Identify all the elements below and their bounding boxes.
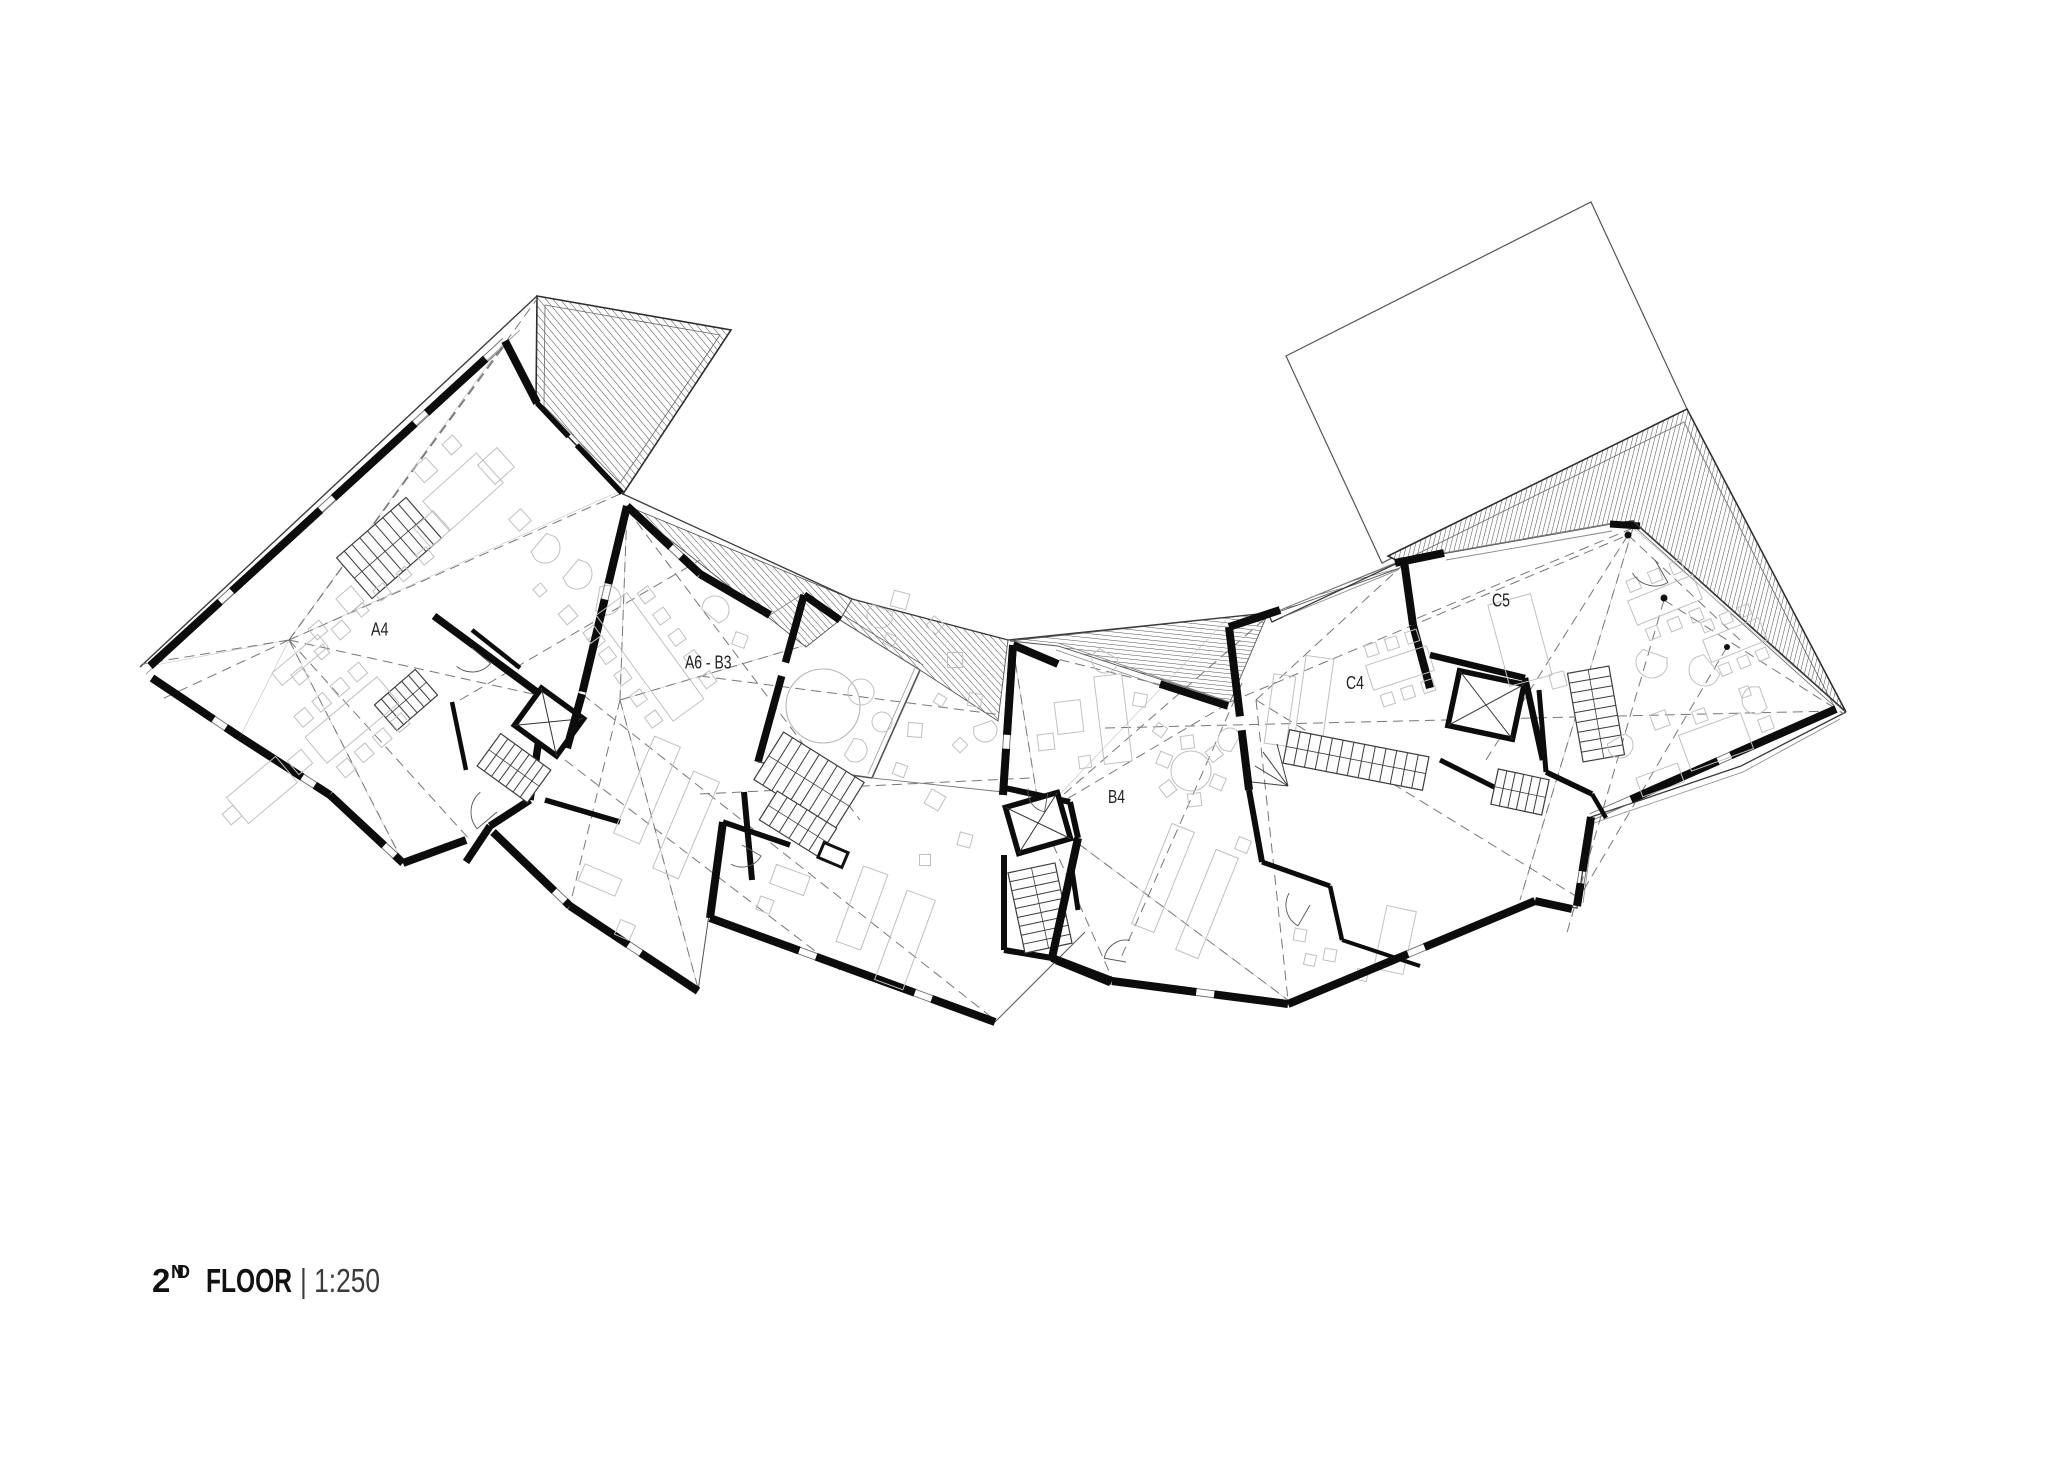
svg-text:C4: C4 <box>1346 673 1364 693</box>
svg-text:2: 2 <box>152 1262 170 1299</box>
svg-text:B4: B4 <box>1108 787 1125 807</box>
svg-text:ND: ND <box>171 1262 190 1282</box>
svg-text:A6 - B3: A6 - B3 <box>685 653 732 673</box>
svg-text:C5: C5 <box>1492 591 1510 611</box>
svg-text:FLOOR: FLOOR <box>206 1262 292 1299</box>
svg-text:A4: A4 <box>371 620 389 640</box>
svg-text:| 1:250: | 1:250 <box>300 1262 380 1299</box>
